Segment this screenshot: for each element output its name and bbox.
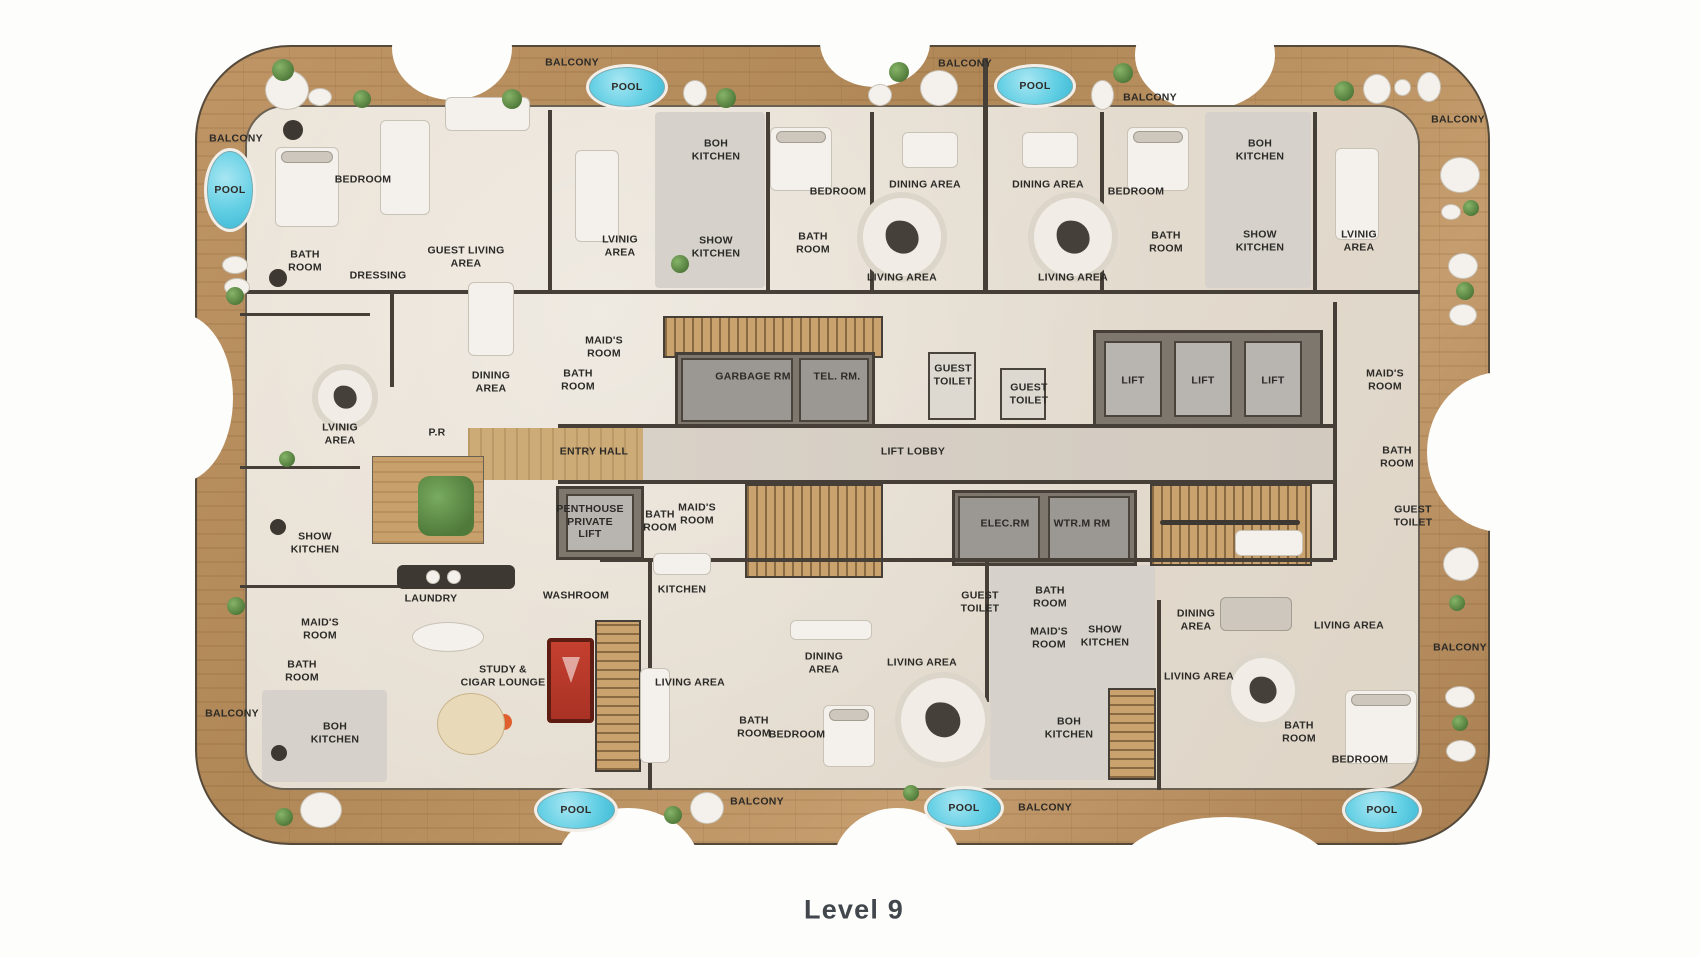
room-label: GUEST TOILET [1010, 381, 1049, 406]
room-label: LIFT [1121, 375, 1144, 388]
room-label: BALCONY [205, 708, 259, 721]
room-label: PENTHOUSE PRIVATE LIFT [556, 503, 624, 541]
room-label: BATH ROOM [288, 248, 322, 273]
room-label: SHOW KITCHEN [692, 234, 740, 259]
room-label: LIVING AREA [887, 657, 957, 670]
room-label: MAID'S ROOM [1030, 625, 1068, 650]
room-label: DINING AREA [1012, 179, 1084, 192]
room-label: GUEST TOILET [1394, 503, 1433, 528]
room-label: LVINIG AREA [602, 233, 638, 258]
room-label: BALCONY [1431, 114, 1485, 127]
room-label: LVINIG AREA [322, 421, 358, 446]
room-label: BEDROOM [769, 729, 826, 742]
room-label: BATH ROOM [796, 230, 830, 255]
room-label: BOH KITCHEN [1236, 137, 1284, 162]
room-label: SHOW KITCHEN [291, 530, 339, 555]
room-label: BOH KITCHEN [1045, 715, 1093, 740]
room-label: GARBAGE RM [715, 371, 790, 384]
room-label: LVINIG AREA [1341, 228, 1377, 253]
room-label: BALCONY [938, 58, 992, 71]
room-label: MAID'S ROOM [1366, 367, 1404, 392]
room-label: ENTRY HALL [560, 446, 628, 459]
room-label: LIFT [1191, 375, 1214, 388]
room-label: LAUNDRY [405, 593, 458, 606]
room-label: SHOW KITCHEN [1236, 228, 1284, 253]
room-label: BALCONY [1433, 642, 1487, 655]
room-label: BALCONY [730, 796, 784, 809]
floor-plan-page: POOLPOOLPOOLPOOLPOOLPOOL BALCONYBEDROOMB… [0, 0, 1700, 957]
room-label: SHOW KITCHEN [1081, 623, 1129, 648]
room-label: BATH ROOM [285, 658, 319, 683]
room-label: KITCHEN [658, 584, 706, 597]
room-label: MAID'S ROOM [301, 616, 339, 641]
room-label: BOH KITCHEN [692, 137, 740, 162]
room-labels-layer: BALCONYBEDROOMBATH ROOMDRESSINGGUEST LIV… [0, 0, 1700, 957]
room-label: BALCONY [545, 57, 599, 70]
room-label: BALCONY [209, 133, 263, 146]
room-label: DINING AREA [889, 179, 961, 192]
room-label: DINING AREA [472, 369, 510, 394]
room-label: LIVING AREA [867, 272, 937, 285]
room-label: LIVING AREA [1314, 620, 1384, 633]
room-label: BEDROOM [1332, 754, 1389, 767]
room-label: BATH ROOM [643, 508, 677, 533]
room-label: BATH ROOM [737, 714, 771, 739]
room-label: BATH ROOM [561, 367, 595, 392]
room-label: DRESSING [350, 270, 407, 283]
room-label: BATH ROOM [1380, 444, 1414, 469]
room-label: LIVING AREA [655, 677, 725, 690]
level-title: Level 9 [804, 895, 904, 926]
room-label: GUEST LIVING AREA [427, 244, 504, 269]
room-label: BALCONY [1123, 92, 1177, 105]
room-label: LIVING AREA [1038, 272, 1108, 285]
room-label: BOH KITCHEN [311, 720, 359, 745]
room-label: DINING AREA [805, 650, 843, 675]
room-label: GUEST TOILET [961, 589, 1000, 614]
room-label: GUEST TOILET [934, 362, 973, 387]
room-label: BATH ROOM [1282, 719, 1316, 744]
room-label: MAID'S ROOM [585, 334, 623, 359]
room-label: ELEC.RM [981, 518, 1030, 531]
room-label: P.R [429, 427, 446, 440]
room-label: MAID'S ROOM [678, 501, 716, 526]
room-label: LIFT LOBBY [881, 446, 945, 459]
room-label: LIFT [1261, 375, 1284, 388]
room-label: TEL. RM. [814, 371, 861, 384]
room-label: BEDROOM [1108, 186, 1165, 199]
room-label: BEDROOM [810, 186, 867, 199]
room-label: BALCONY [1018, 802, 1072, 815]
room-label: STUDY & CIGAR LOUNGE [461, 663, 546, 688]
room-label: DINING AREA [1177, 607, 1215, 632]
room-label: WTR.M RM [1054, 518, 1111, 531]
room-label: BATH ROOM [1033, 584, 1067, 609]
room-label: LIVING AREA [1164, 671, 1234, 684]
room-label: BATH ROOM [1149, 229, 1183, 254]
room-label: BEDROOM [335, 174, 392, 187]
room-label: WASHROOM [543, 590, 609, 603]
